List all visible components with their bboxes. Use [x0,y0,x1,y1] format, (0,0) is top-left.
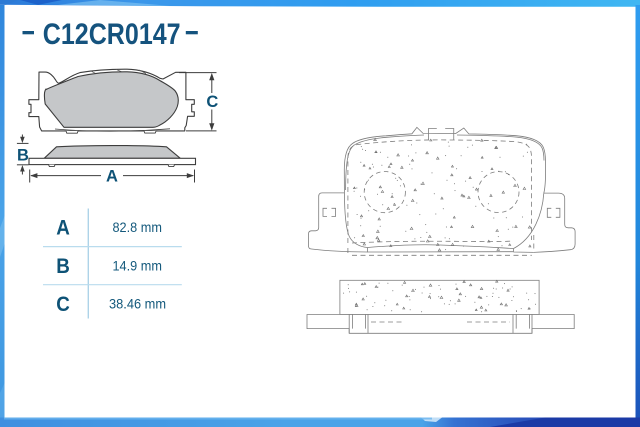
svg-text:C12CR0147: C12CR0147 [43,18,181,51]
svg-text:14.9 mm: 14.9 mm [113,257,162,273]
svg-text:B: B [56,254,70,278]
svg-text:C: C [206,93,218,111]
svg-text:38.46 mm: 38.46 mm [109,296,166,312]
svg-text:82.8 mm: 82.8 mm [113,219,162,235]
svg-text:A: A [106,167,118,185]
svg-text:C: C [56,292,70,316]
svg-text:A: A [56,215,70,239]
svg-text:B: B [17,147,29,165]
